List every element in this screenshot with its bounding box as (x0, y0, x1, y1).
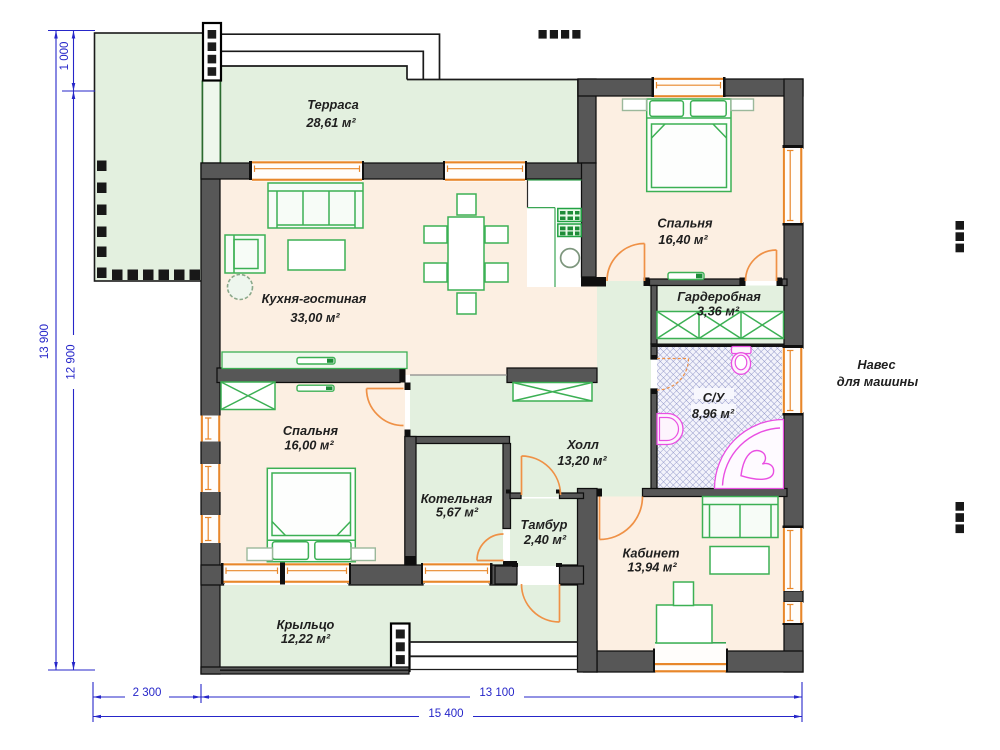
svg-text:Кухня-гостиная: Кухня-гостиная (262, 291, 367, 306)
svg-text:12 900: 12 900 (66, 344, 78, 379)
svg-text:Гардеробная: Гардеробная (677, 289, 761, 304)
svg-text:13,20 м²: 13,20 м² (557, 453, 607, 468)
svg-text:15 400: 15 400 (428, 708, 463, 720)
svg-text:для машины: для машины (837, 374, 918, 389)
svg-text:16,00 м²: 16,00 м² (284, 438, 334, 453)
svg-text:2,40 м²: 2,40 м² (523, 532, 567, 547)
svg-text:Крыльцо: Крыльцо (277, 617, 335, 632)
svg-text:Спальня: Спальня (657, 216, 713, 231)
svg-text:1 000: 1 000 (59, 42, 71, 71)
svg-text:3,36 м²: 3,36 м² (697, 304, 740, 319)
svg-text:16,40 м²: 16,40 м² (658, 232, 708, 247)
svg-text:8,96 м²: 8,96 м² (692, 406, 735, 421)
svg-text:33,00 м²: 33,00 м² (290, 310, 340, 325)
svg-text:Кабинет: Кабинет (623, 546, 680, 561)
svg-text:13 100: 13 100 (479, 687, 514, 699)
svg-text:13,94 м²: 13,94 м² (627, 560, 677, 575)
svg-text:12,22 м²: 12,22 м² (281, 631, 331, 646)
svg-text:13 900: 13 900 (39, 324, 51, 359)
svg-text:5,67 м²: 5,67 м² (436, 505, 479, 520)
svg-text:Навес: Навес (857, 357, 895, 372)
svg-text:Терраса: Терраса (307, 97, 358, 112)
svg-text:Тамбур: Тамбур (521, 517, 568, 532)
svg-text:2 300: 2 300 (133, 687, 162, 699)
svg-text:28,61 м²: 28,61 м² (305, 115, 356, 130)
svg-text:С/У: С/У (703, 390, 726, 405)
svg-text:Холл: Холл (566, 437, 599, 452)
svg-text:Спальня: Спальня (283, 423, 339, 438)
